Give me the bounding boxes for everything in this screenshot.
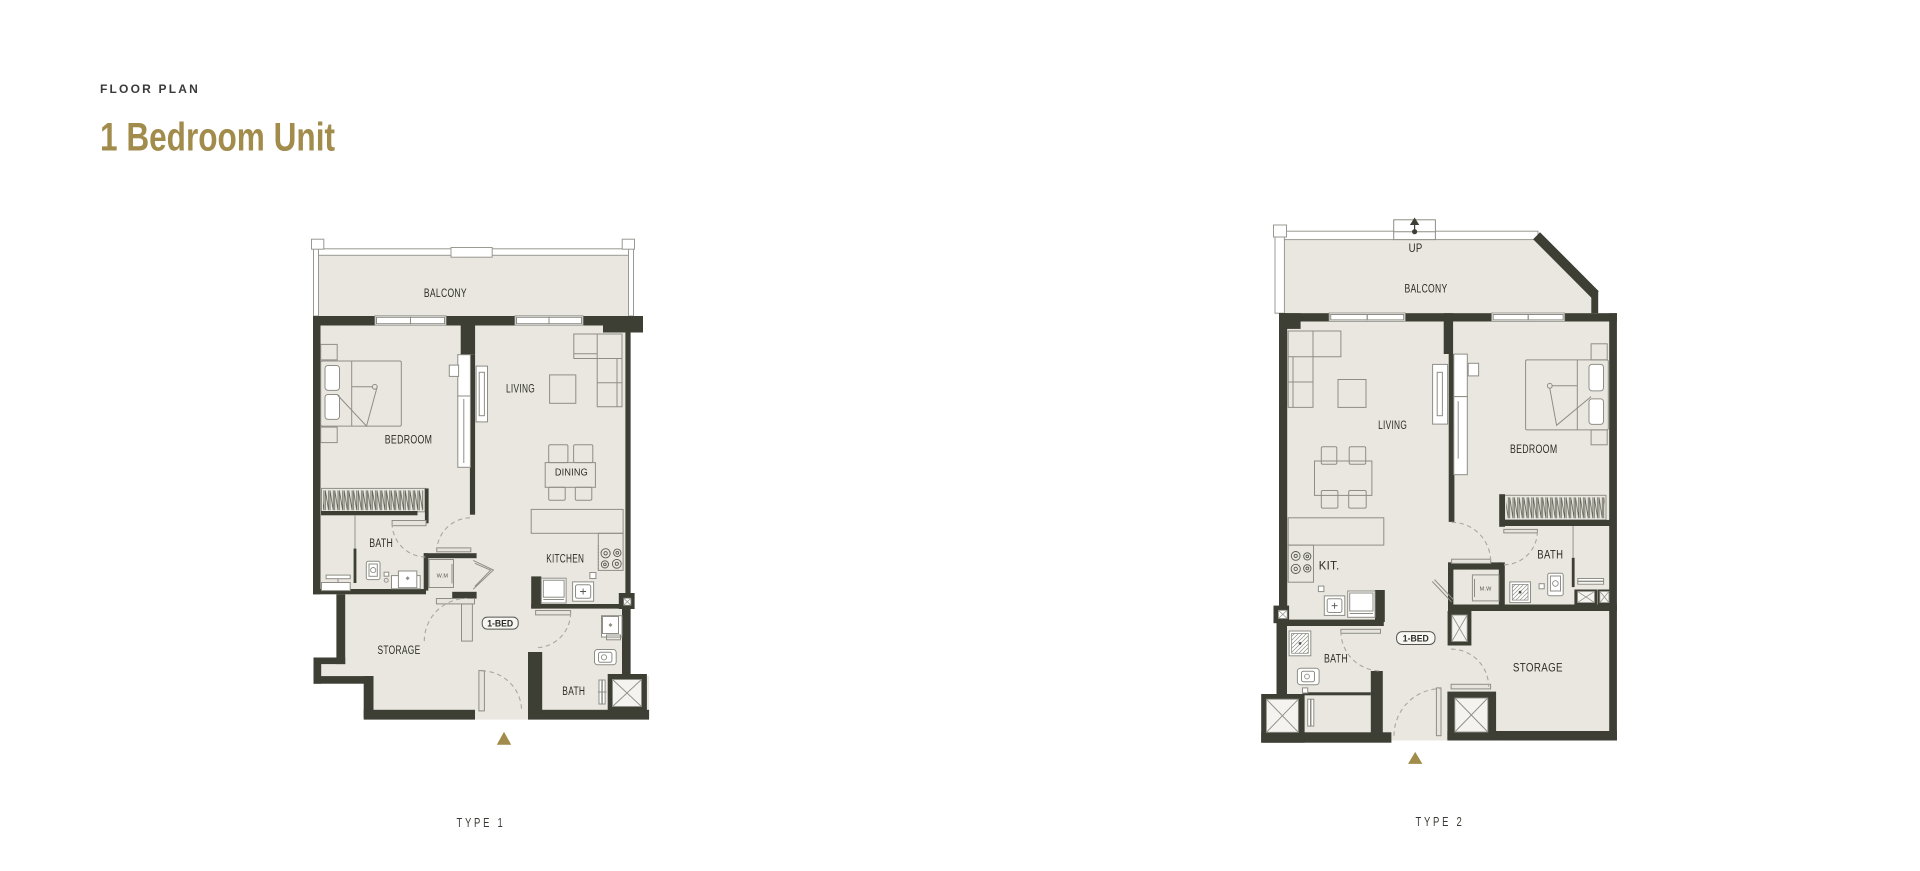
svg-text:BATH: BATH [1324,654,1348,666]
svg-text:STORAGE: STORAGE [378,645,421,657]
svg-text:BEDROOM: BEDROOM [1510,444,1558,456]
svg-text:BATH: BATH [369,538,393,550]
svg-text:LIVING: LIVING [1378,420,1407,432]
svg-text:W.M: W.M [437,574,449,580]
svg-text:BATH: BATH [1537,550,1563,562]
svg-text:M.W: M.W [1480,587,1493,593]
svg-text:BALCONY: BALCONY [1405,283,1448,295]
svg-text:BATH: BATH [562,686,585,698]
svg-text:1 Bedroom Unit: 1 Bedroom Unit [100,116,335,160]
svg-text:1-BED: 1-BED [1403,634,1429,645]
svg-text:FLOOR PLAN: FLOOR PLAN [100,82,200,96]
svg-text:LIVING: LIVING [506,383,535,395]
svg-text:UP: UP [1409,243,1423,255]
svg-text:TYPE 2: TYPE 2 [1416,815,1465,829]
svg-text:1-BED: 1-BED [487,619,513,630]
svg-text:BEDROOM: BEDROOM [385,435,433,447]
svg-text:KITCHEN: KITCHEN [546,554,584,566]
svg-text:KIT.: KIT. [1319,561,1340,573]
svg-text:STORAGE: STORAGE [1513,663,1563,675]
svg-text:BALCONY: BALCONY [424,288,467,300]
svg-text:TYPE 1: TYPE 1 [457,816,506,830]
svg-text:DINING: DINING [555,467,588,478]
